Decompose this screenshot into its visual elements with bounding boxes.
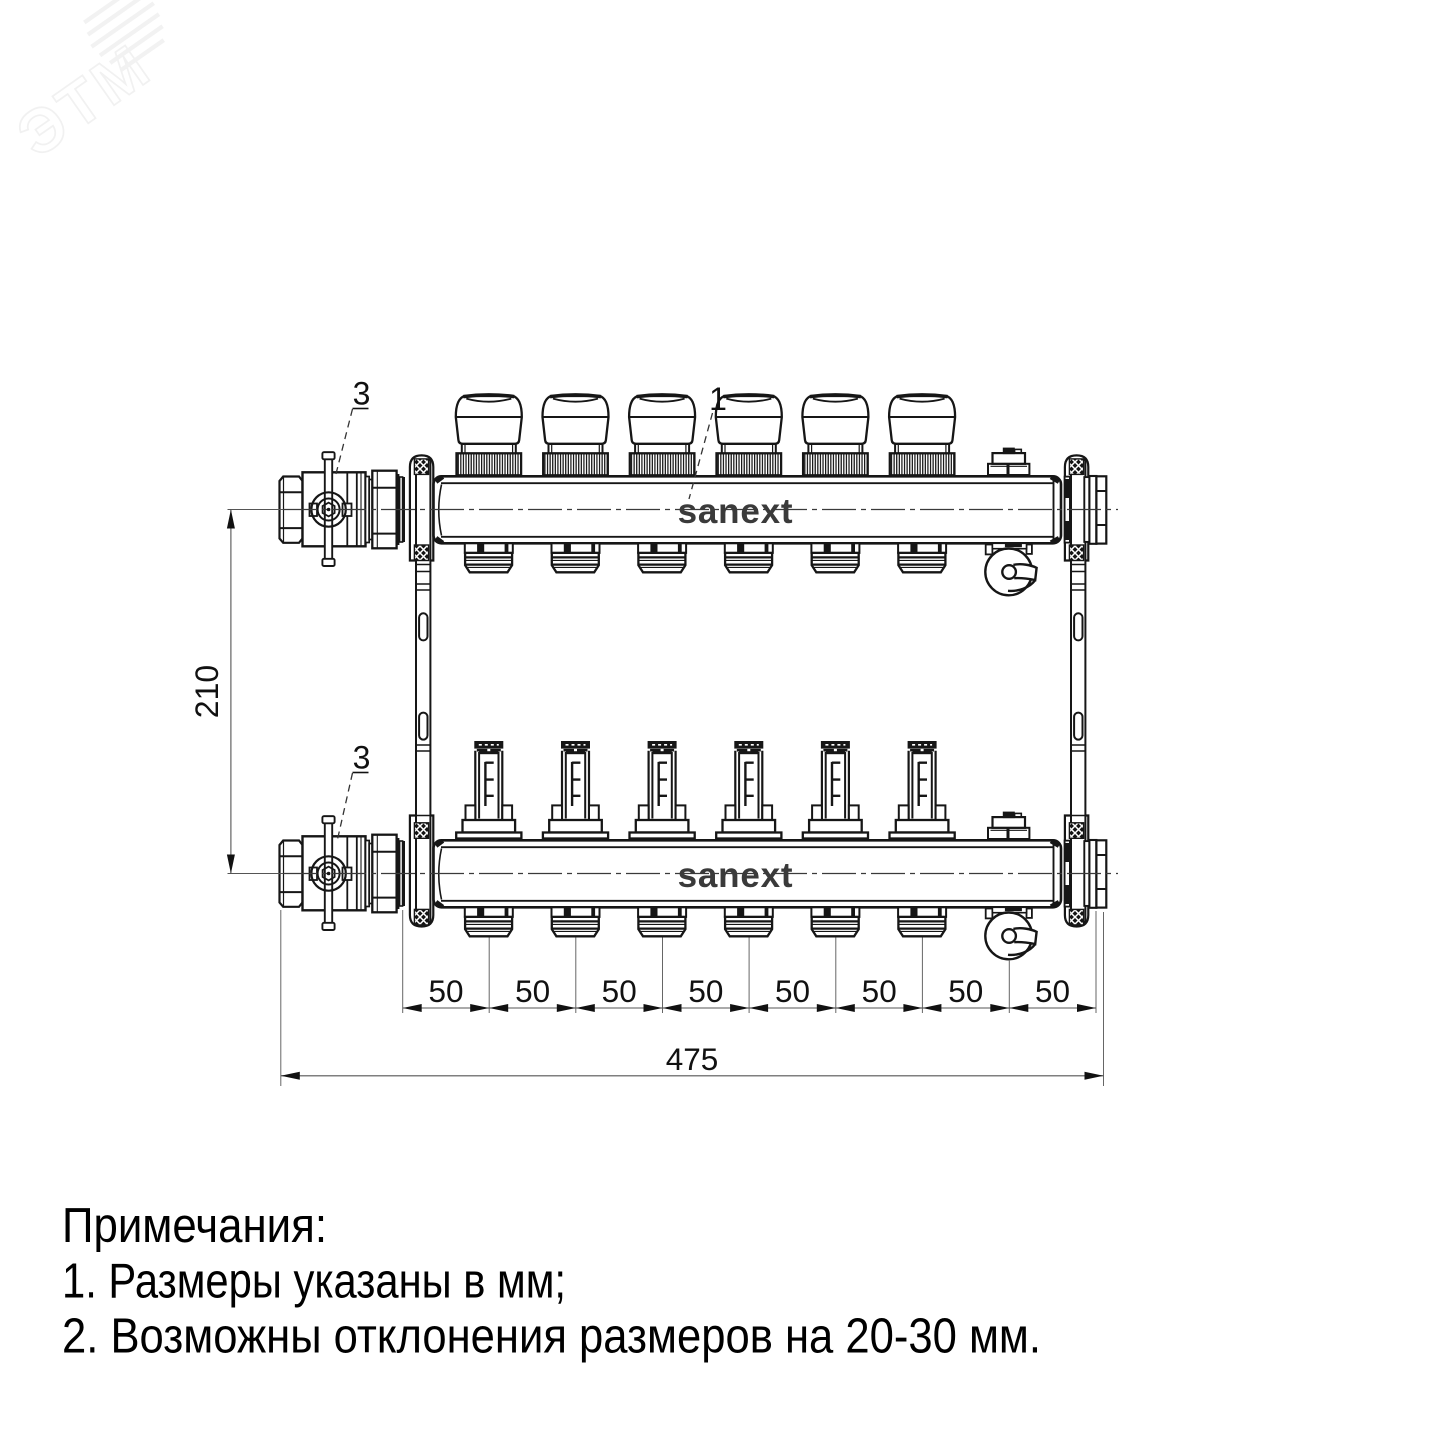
svg-text:2. Возможны отклонения размеро: 2. Возможны отклонения размеров на 20-30… <box>62 1310 1041 1364</box>
svg-text:210: 210 <box>189 665 225 718</box>
svg-text:1: 1 <box>709 381 727 417</box>
svg-text:Примечания:: Примечания: <box>62 1199 327 1253</box>
svg-text:50: 50 <box>948 973 983 1009</box>
svg-text:50: 50 <box>515 973 550 1009</box>
svg-text:50: 50 <box>862 973 897 1009</box>
svg-text:3: 3 <box>353 376 371 412</box>
svg-text:3: 3 <box>353 740 371 776</box>
svg-text:50: 50 <box>688 973 723 1009</box>
svg-text:50: 50 <box>428 973 463 1009</box>
svg-text:50: 50 <box>775 973 810 1009</box>
svg-text:1. Размеры указаны в мм;: 1. Размеры указаны в мм; <box>62 1255 566 1309</box>
svg-text:50: 50 <box>602 973 637 1009</box>
svg-text:475: 475 <box>666 1041 719 1077</box>
svg-text:50: 50 <box>1035 973 1070 1009</box>
